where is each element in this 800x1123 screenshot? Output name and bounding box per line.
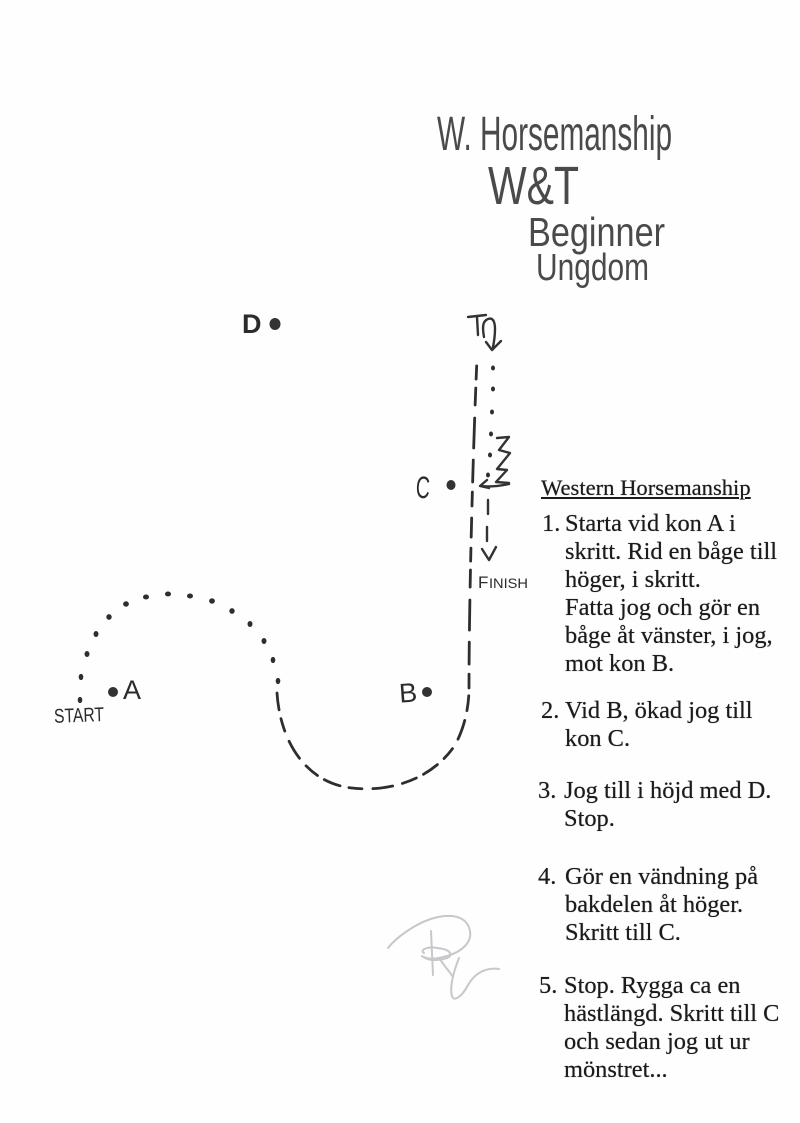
svg-text:C: C xyxy=(415,470,431,506)
svg-text:Ungdom: Ungdom xyxy=(536,247,649,289)
svg-text:W. Horsemanship: W. Horsemanship xyxy=(437,108,672,161)
svg-text:W&T: W&T xyxy=(488,156,579,216)
svg-text:B: B xyxy=(398,677,418,708)
svg-text:A: A xyxy=(123,675,141,705)
svg-text:START: START xyxy=(54,704,105,728)
svg-text:INISH: INISH xyxy=(489,576,528,591)
svg-text:D: D xyxy=(242,309,262,339)
svg-text:F: F xyxy=(478,573,488,592)
